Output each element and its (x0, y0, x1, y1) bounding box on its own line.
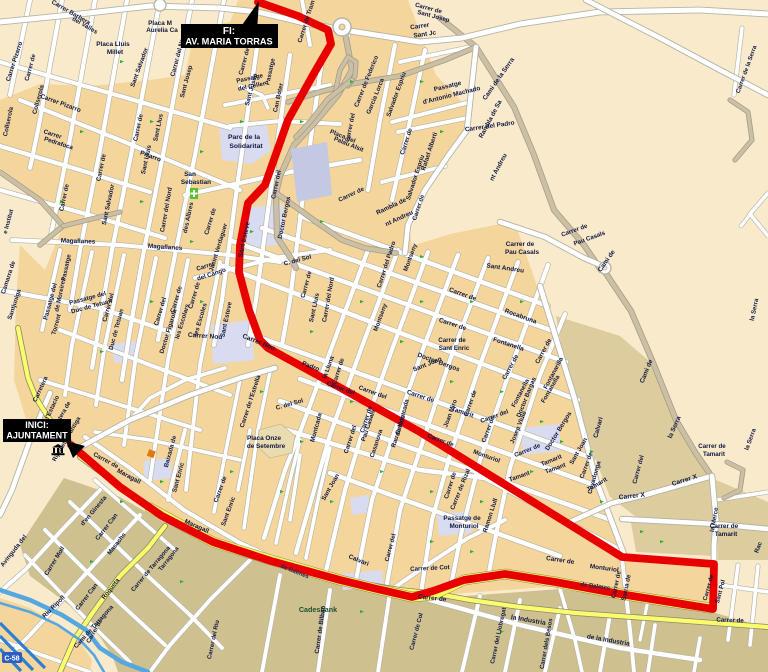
svg-text:INICI:: INICI: (25, 420, 49, 430)
svg-text:de Setembre: de Setembre (247, 443, 286, 450)
svg-text:Placa Lluis: Placa Lluis (96, 41, 130, 48)
svg-text:Carrer de: Carrer de (698, 443, 726, 450)
svg-text:Carrer de: Carrer de (716, 617, 744, 625)
svg-text:Sebastian: Sebastian (181, 179, 211, 186)
svg-text:San: San (184, 171, 196, 178)
svg-text:FI:: FI: (223, 26, 235, 37)
svg-text:Millet: Millet (107, 49, 124, 56)
svg-text:Carrer de: Carrer de (438, 337, 466, 344)
svg-text:Passatge de: Passatge de (443, 515, 481, 522)
svg-text:Placa Onze: Placa Onze (247, 435, 282, 442)
svg-text:Pau Casals: Pau Casals (505, 249, 540, 256)
svg-text:Carrer de: Carrer de (710, 523, 739, 530)
svg-text:Monturiol: Monturiol (449, 523, 478, 530)
svg-text:Cadesbank: Cadesbank (299, 605, 337, 614)
svg-text:Carrer de: Carrer de (506, 241, 535, 248)
svg-text:Parc de la: Parc de la (228, 134, 260, 141)
svg-text:Tamarit: Tamarit (703, 451, 725, 458)
svg-text:Tamarit: Tamarit (715, 531, 738, 538)
svg-text:Magallanes: Magallanes (61, 237, 96, 245)
svg-text:C-58: C-58 (4, 656, 19, 663)
svg-text:Solidaritat: Solidaritat (229, 143, 263, 150)
svg-text:Placa M: Placa M (148, 20, 172, 27)
svg-text:Aurelia Ca: Aurelia Ca (146, 27, 178, 34)
svg-text:AV. MARIA TORRAS: AV. MARIA TORRAS (185, 37, 272, 47)
svg-text:AJUNTAMENT: AJUNTAMENT (6, 431, 68, 441)
svg-text:Sant Enric: Sant Enric (439, 345, 470, 352)
